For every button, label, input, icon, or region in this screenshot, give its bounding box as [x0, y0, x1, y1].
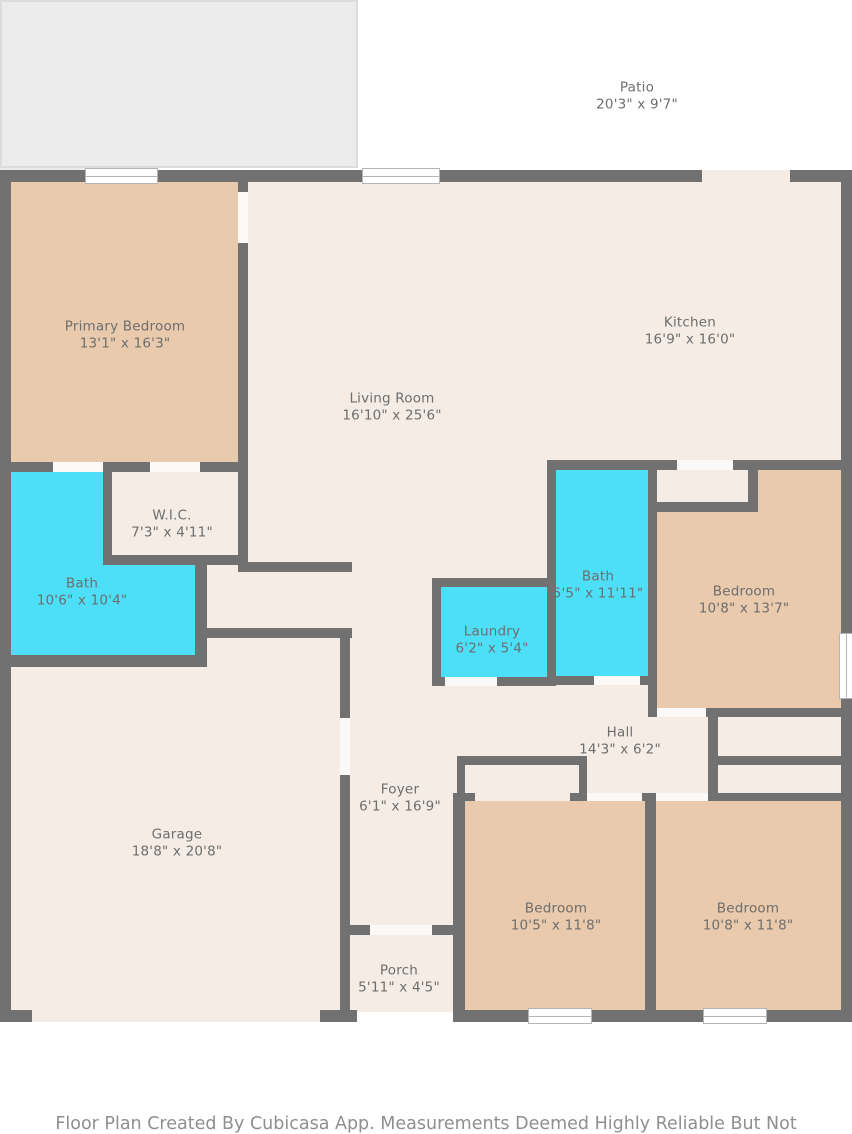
door-opening-pantry — [677, 460, 733, 470]
wall-segment — [158, 170, 362, 182]
room-label-laundry: Laundry 6'2" x 5'4" — [456, 624, 529, 657]
wall-segment — [648, 708, 657, 717]
room-dims: 13'1" x 16'3" — [65, 335, 186, 352]
wall-segment — [0, 655, 203, 667]
room-label-bedroom-ne: Bedroom 10'8" x 13'7" — [699, 584, 790, 617]
room-label-porch: Porch 5'11" x 4'5" — [358, 963, 440, 996]
wall-segment — [440, 170, 702, 182]
room-dims: 16'10" x 25'6" — [342, 407, 441, 424]
wall-segment — [345, 925, 370, 935]
room-dims: 5'5" x 11'11" — [553, 585, 644, 602]
porch-bottom-gap — [357, 1012, 453, 1022]
room-label-garage: Garage 18'8" x 20'8" — [132, 827, 223, 860]
wall-segment — [706, 708, 844, 717]
door-opening-laundry — [445, 677, 497, 686]
wall-segment — [648, 502, 758, 512]
door-opening-garage-foyer — [340, 718, 350, 775]
door-opening-primary-bedroom — [238, 192, 248, 243]
wall-segment — [642, 793, 656, 801]
door-opening-bath-hall — [594, 676, 640, 685]
room-label-wic: W.I.C. 7'3" x 4'11" — [131, 508, 213, 541]
window — [362, 168, 440, 184]
floor-plan: Patio 20'3" x 9'7" Primary Bedroom 13'1"… — [0, 0, 852, 1134]
wall-segment — [841, 170, 852, 1022]
wall-segment — [457, 756, 587, 765]
room-label-hall: Hall 14'3" x 6'2" — [579, 725, 661, 758]
footer-disclaimer: Floor Plan Created By Cubicasa App. Meas… — [0, 1112, 852, 1134]
room-dims: 5'11" x 4'5" — [358, 979, 440, 996]
window-pane — [363, 176, 439, 177]
room-name: Hall — [579, 725, 661, 742]
wall-segment — [238, 562, 352, 572]
wall-segment — [11, 462, 53, 472]
room-dims: 20'3" x 9'7" — [596, 96, 678, 113]
wall-segment — [708, 717, 718, 801]
wall-segment — [648, 462, 657, 717]
door-opening-bath-primary — [53, 462, 103, 472]
wall-segment — [556, 676, 594, 685]
room-fill-bath-primary-upper — [8, 472, 103, 567]
wall-segment — [103, 462, 112, 565]
wall-segment — [645, 801, 656, 1010]
room-label-foyer: Foyer 6'1" x 16'9" — [359, 782, 441, 815]
wall-segment — [570, 793, 587, 801]
wall-segment — [708, 793, 844, 801]
room-name: Garage — [132, 827, 223, 844]
room-label-bath-primary: Bath 10'6" x 10'4" — [37, 576, 128, 609]
room-label-kitchen: Kitchen 16'9" x 16'0" — [645, 315, 736, 348]
wall-segment — [718, 756, 844, 765]
door-opening-bedroom-s1 — [587, 793, 642, 801]
wall-segment — [340, 775, 350, 1012]
window-pane — [704, 1016, 766, 1017]
wall-segment — [432, 925, 465, 935]
window-pane — [846, 634, 847, 698]
wall-segment — [547, 460, 677, 470]
room-dims: 6'1" x 16'9" — [359, 798, 441, 815]
door-opening-wic — [150, 462, 200, 472]
room-fill-bedroom-ne-ext — [758, 470, 841, 514]
room-name: Bedroom — [703, 901, 794, 918]
room-dims: 10'8" x 11'8" — [703, 917, 794, 934]
room-name: Laundry — [456, 624, 529, 641]
wall-segment — [0, 170, 85, 182]
room-name: Primary Bedroom — [65, 319, 186, 336]
room-dims: 10'5" x 11'8" — [511, 917, 602, 934]
room-name: Bath — [553, 569, 644, 586]
wall-segment — [453, 793, 465, 1012]
wall-segment — [453, 1010, 852, 1022]
wall-segment — [0, 170, 11, 1022]
wall-segment — [432, 578, 441, 685]
wall-segment — [640, 676, 648, 685]
wall-segment — [0, 1010, 32, 1022]
wall-segment — [103, 555, 248, 565]
wall-segment — [340, 630, 350, 718]
wall-segment — [200, 462, 248, 472]
room-label-bedroom-s2: Bedroom 10'8" x 11'8" — [703, 901, 794, 934]
wall-segment — [195, 565, 207, 667]
patio-area — [0, 0, 358, 168]
window — [528, 1008, 592, 1024]
room-dims: 10'8" x 13'7" — [699, 600, 790, 617]
door-opening-bedroom-s2 — [656, 793, 708, 801]
wall-segment — [432, 677, 445, 686]
door-opening-front-entry — [370, 925, 432, 935]
room-label-bath-hall: Bath 5'5" x 11'11" — [553, 569, 644, 602]
wall-segment — [238, 243, 248, 565]
wall-segment — [748, 462, 758, 512]
room-dims: 14'3" x 6'2" — [579, 741, 661, 758]
room-dims: 16'9" x 16'0" — [645, 331, 736, 348]
room-label-living-room: Living Room 16'10" x 25'6" — [342, 391, 441, 424]
room-name: Living Room — [342, 391, 441, 408]
wall-segment — [238, 181, 248, 192]
window — [839, 633, 852, 699]
room-name: Kitchen — [645, 315, 736, 332]
window-pane — [529, 1016, 591, 1017]
window — [85, 168, 158, 184]
room-dims: 10'6" x 10'4" — [37, 592, 128, 609]
room-label-bedroom-s1: Bedroom 10'5" x 11'8" — [511, 901, 602, 934]
room-dims: 7'3" x 4'11" — [131, 524, 213, 541]
room-name: Bath — [37, 576, 128, 593]
room-name: Patio — [596, 80, 678, 97]
window-pane — [86, 176, 157, 177]
wall-segment — [320, 1010, 357, 1022]
room-name: Foyer — [359, 782, 441, 799]
door-opening-bedroom-ne — [657, 708, 706, 717]
wall-segment — [432, 578, 556, 587]
room-dims: 6'2" x 5'4" — [456, 640, 529, 657]
room-label-patio: Patio 20'3" x 9'7" — [596, 80, 678, 113]
room-name: Porch — [358, 963, 440, 980]
room-name: Bedroom — [699, 584, 790, 601]
room-dims: 18'8" x 20'8" — [132, 843, 223, 860]
room-name: Bedroom — [511, 901, 602, 918]
window — [703, 1008, 767, 1024]
room-label-primary-bedroom: Primary Bedroom 13'1" x 16'3" — [65, 319, 186, 352]
room-name: W.I.C. — [131, 508, 213, 525]
wall-segment — [207, 628, 352, 638]
